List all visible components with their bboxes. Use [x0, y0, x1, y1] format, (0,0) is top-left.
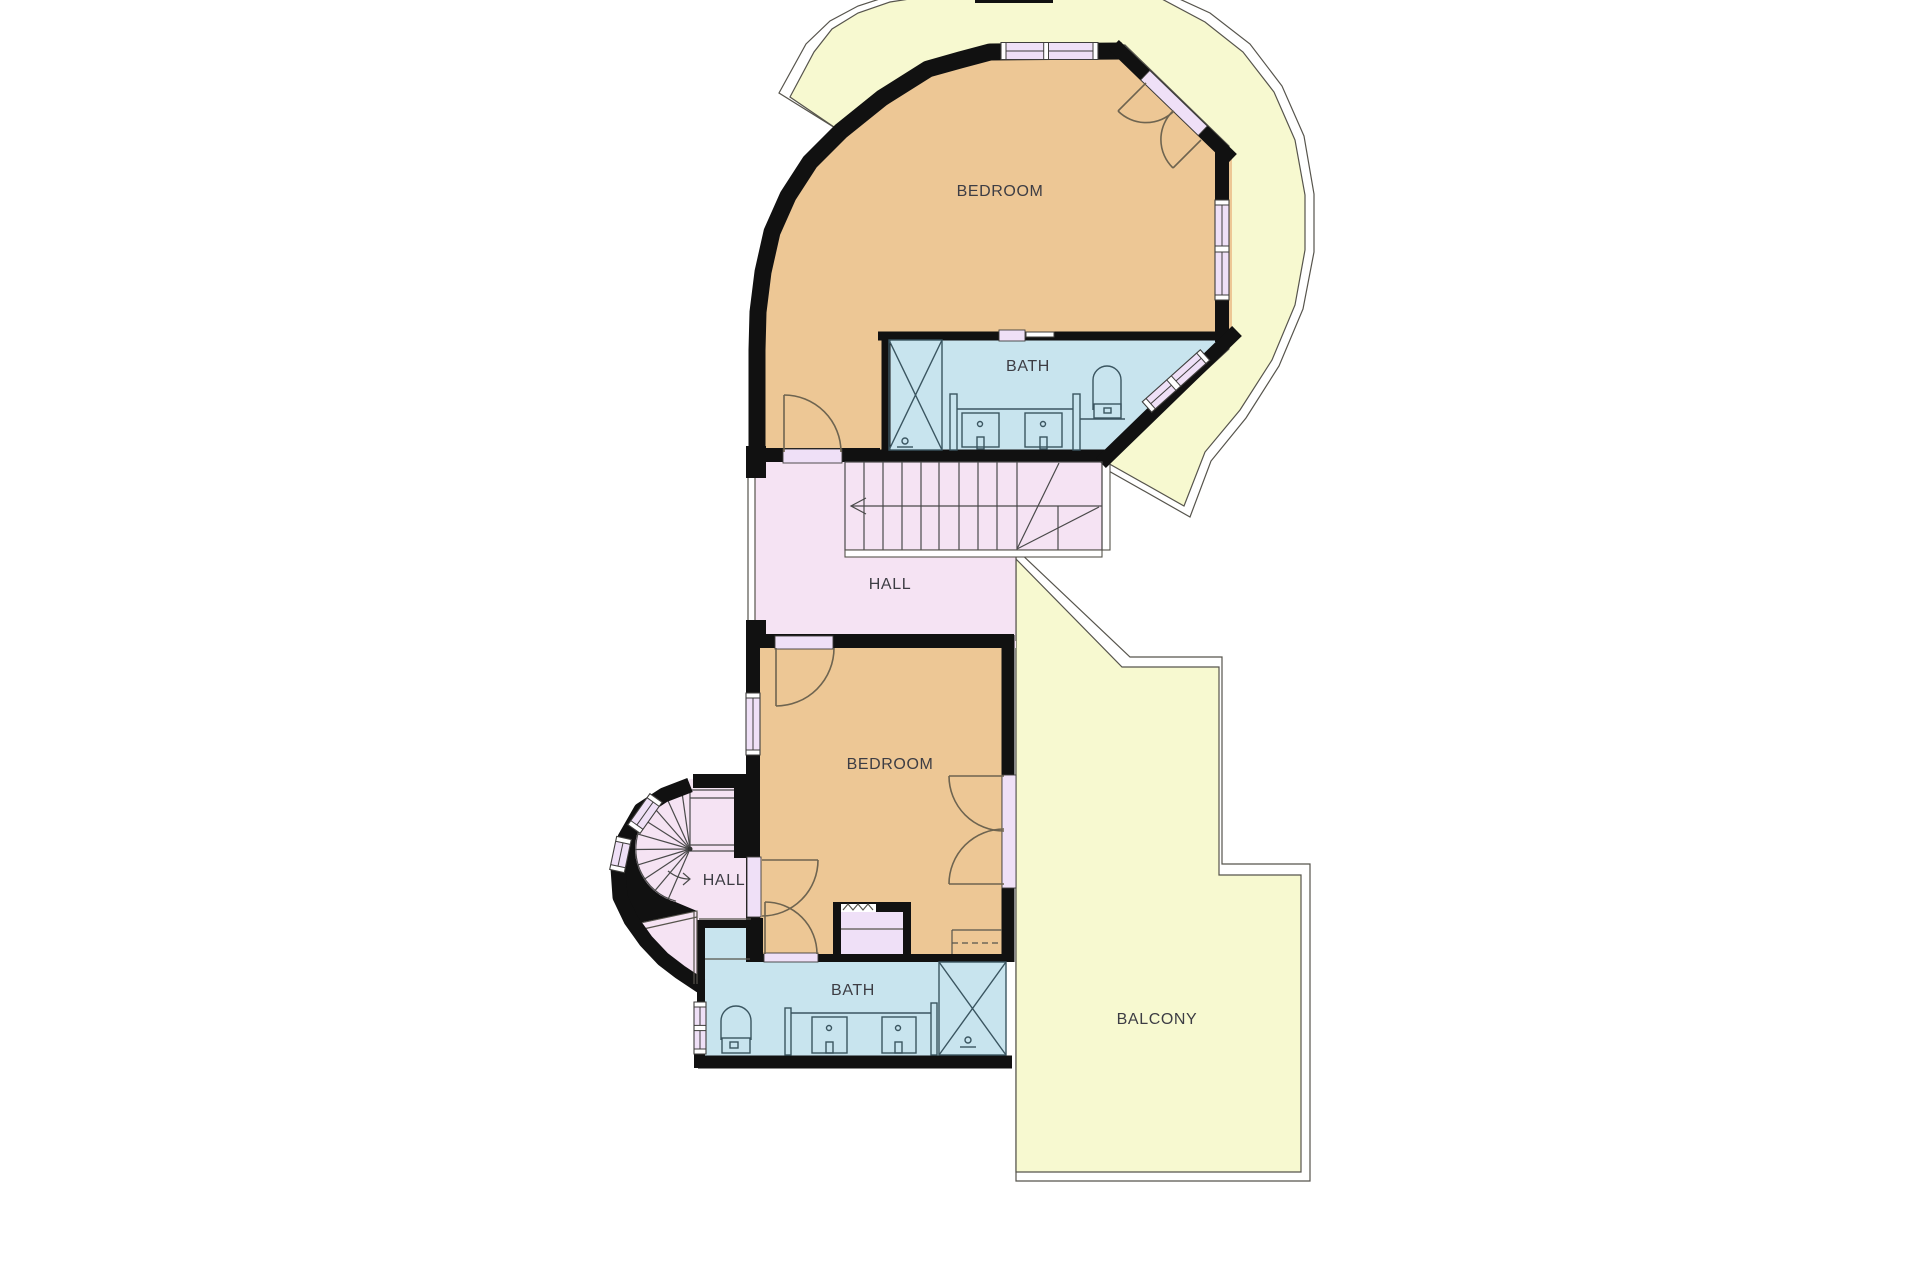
svg-text:HALL: HALL	[703, 872, 745, 889]
svg-text:BEDROOM: BEDROOM	[957, 183, 1044, 200]
svg-text:BATH: BATH	[1006, 358, 1050, 375]
svg-text:BALCONY: BALCONY	[1117, 1011, 1198, 1028]
svg-text:HALL: HALL	[869, 576, 911, 593]
svg-text:BEDROOM: BEDROOM	[847, 756, 934, 773]
svg-text:BATH: BATH	[831, 982, 875, 999]
